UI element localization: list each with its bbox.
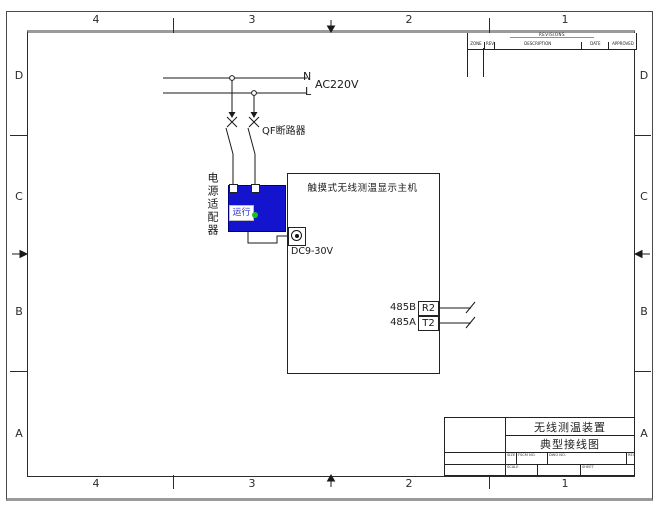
port-box-r2: R2 [418, 301, 439, 316]
breaker-contact-arrows [229, 112, 258, 118]
title-block-left-bottom-cell [444, 464, 506, 476]
running-led-indicator [252, 212, 258, 218]
title-block-middle-cell [537, 464, 581, 476]
adapter-status-label: 运行 [229, 205, 254, 221]
title-block-product-name: 无线测温装置 [505, 417, 635, 436]
breaker-label: QF断路器 [262, 126, 306, 137]
title-block-sheet-cell: SHEET [580, 464, 635, 476]
fscm-label: FSCM NO. [518, 453, 536, 457]
dc-input-label: DC9-30V [291, 246, 333, 257]
title-block-drawing-type: 典型接线图 [505, 435, 635, 453]
rev-label: REV [628, 453, 635, 457]
live-line-label: L [305, 86, 311, 98]
title-block-logo-cell [444, 417, 506, 453]
scale-label: SCALE [507, 465, 519, 469]
sheet-label: SHEET [582, 465, 594, 469]
dwg-no-label: DWG NO. [549, 453, 566, 457]
size-label: SIZE [507, 453, 515, 457]
dc-jack-pin-icon [295, 234, 299, 238]
revision-table-stub-lines [468, 48, 484, 77]
adapter-label: 电源适配器 [205, 172, 219, 244]
neutral-line-label: N [303, 71, 311, 83]
drawing-sheet: 4 3 2 1 4 3 2 1 D C B A D C B A REVISION… [0, 0, 663, 509]
signal-label-485a: 485A [386, 316, 416, 329]
host-title: 触摸式无线测温显示主机 [287, 180, 438, 194]
signal-label-485b: 485B [386, 301, 416, 314]
voltage-label: AC220V [315, 79, 359, 91]
port-box-t2: T2 [418, 316, 439, 331]
connection-dots [230, 76, 257, 96]
adapter-terminal-n [229, 184, 238, 193]
host-device-box [287, 173, 440, 374]
adapter-terminal-l [251, 184, 260, 193]
title-block-scale-cell: SCALE [505, 464, 538, 476]
